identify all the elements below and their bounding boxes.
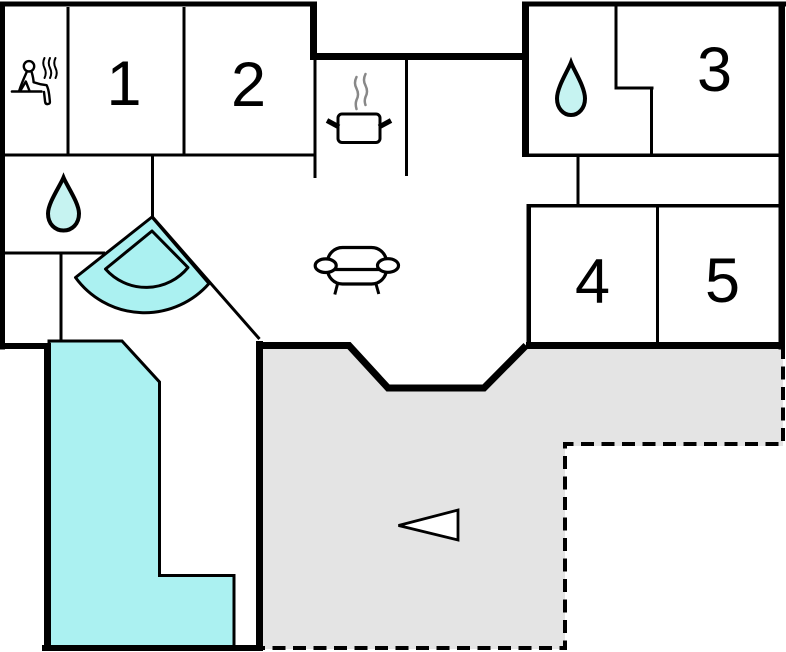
- svg-text:5: 5: [705, 246, 740, 316]
- svg-text:3: 3: [697, 35, 732, 105]
- svg-text:2: 2: [231, 50, 266, 120]
- svg-text:4: 4: [575, 247, 610, 317]
- svg-text:1: 1: [106, 49, 141, 119]
